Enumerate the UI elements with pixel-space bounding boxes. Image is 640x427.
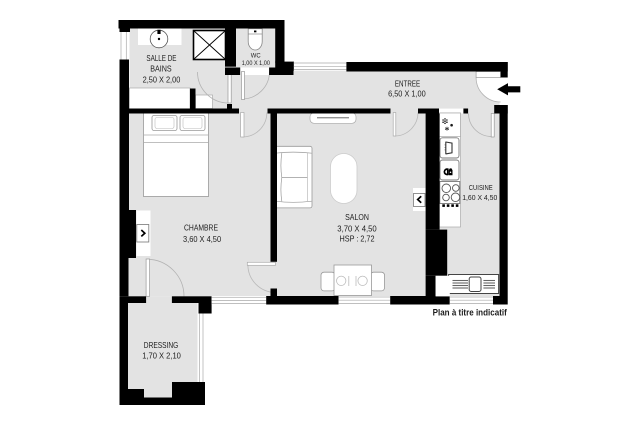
svg-text:WC: WC xyxy=(251,52,261,59)
svg-text:SALON: SALON xyxy=(345,213,369,222)
svg-text:ENTREE: ENTREE xyxy=(395,80,421,89)
svg-text:1,00 X 1,00: 1,00 X 1,00 xyxy=(242,60,271,67)
svg-text:3,60 X 4,50: 3,60 X 4,50 xyxy=(183,235,221,244)
svg-text:1,70 X 2,10: 1,70 X 2,10 xyxy=(142,352,181,361)
svg-text:6,50 X 1,00: 6,50 X 1,00 xyxy=(388,89,426,98)
svg-text:CHAMBRE: CHAMBRE xyxy=(184,224,218,233)
svg-text:3,70 X 4,50: 3,70 X 4,50 xyxy=(337,225,377,234)
svg-text:1,60 X 4,50: 1,60 X 4,50 xyxy=(462,195,497,202)
svg-text:HSP : 2,72: HSP : 2,72 xyxy=(340,234,375,243)
svg-text:SALLE DE: SALLE DE xyxy=(146,54,177,63)
svg-text:BAINS: BAINS xyxy=(150,64,172,73)
svg-text:CUISINE: CUISINE xyxy=(469,185,493,192)
svg-text:2,50 X 2,00: 2,50 X 2,00 xyxy=(143,75,181,84)
svg-text:Plan à titre indicatif: Plan à titre indicatif xyxy=(433,308,508,318)
svg-text:DRESSING: DRESSING xyxy=(144,341,179,350)
